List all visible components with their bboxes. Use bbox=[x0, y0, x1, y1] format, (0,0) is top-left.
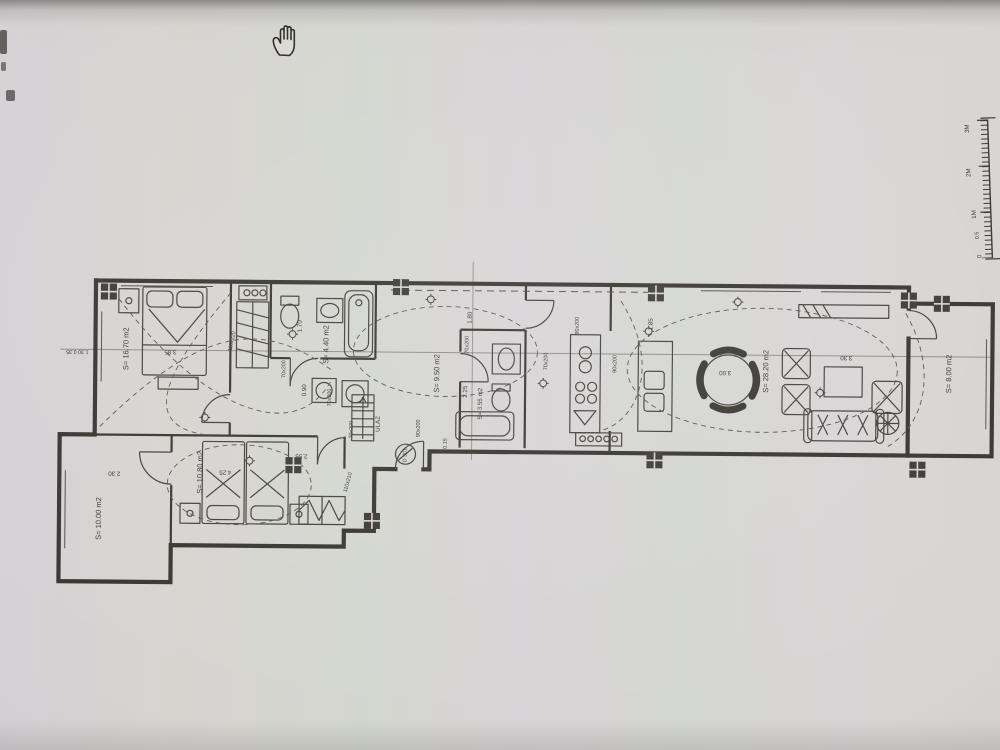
room-label-hallway: S= 9.50 m2 bbox=[432, 354, 441, 393]
scale-label-05m: 0.5 bbox=[974, 232, 980, 240]
dim-wardrobe-bottom: 110x210 bbox=[343, 472, 354, 493]
dim-door-living: 90x200 bbox=[612, 355, 618, 373]
dim-bedroom2-length: 4.25 bbox=[219, 469, 232, 476]
scale-label-3m: 3M bbox=[964, 124, 971, 133]
electrical-arcs bbox=[99, 292, 925, 531]
bedroom2-furniture bbox=[180, 441, 346, 524]
dim-door-kitchen: 90x200 bbox=[575, 317, 581, 335]
entrance-label: ULAZ bbox=[375, 416, 382, 432]
door-bathroom2 bbox=[460, 354, 488, 382]
scale-bar: 3M 2M 1M 0.5 0 bbox=[964, 118, 1000, 260]
dim-bathroom1-length: 1.70 bbox=[297, 320, 304, 333]
hand-cursor-icon bbox=[273, 26, 294, 56]
section-line-vertical bbox=[471, 262, 473, 460]
dim-door-bedroom1: 70x200 bbox=[281, 360, 287, 378]
dim-bedroom2-width: 2.55 bbox=[295, 452, 308, 459]
entrance-labels: ULAZ D 301 90x200 bbox=[374, 416, 421, 463]
dim-door-kitchen2: 70x200 bbox=[543, 353, 549, 371]
door-bedroom2 bbox=[317, 436, 344, 464]
dim-hall-corner: 0.90 bbox=[301, 384, 308, 397]
dim-door-bathroom1: 70x200 bbox=[327, 389, 333, 407]
scale-label-1m: 1M bbox=[971, 210, 978, 219]
dim-bathroom2-length: 2.25 bbox=[462, 385, 469, 398]
dim-wall-offsets: 1.30 0.35 bbox=[66, 348, 89, 354]
dim-terrace-left-width: 2.30 bbox=[108, 470, 121, 477]
scale-label-2m: 2M bbox=[965, 168, 972, 177]
dim-living-width: 3.30 bbox=[840, 354, 853, 361]
room-label-terrace-right: S= 8.00 m2 bbox=[944, 355, 953, 394]
lamp-symbols bbox=[199, 292, 826, 471]
dim-dining-width: 3.00 bbox=[719, 369, 732, 376]
floorplan-canvas[interactable]: S= 16.70 m2 S= 4.40 m2 S= 9.50 m2 S= 3.5… bbox=[0, 0, 1000, 750]
entrance-door-code: D 301 bbox=[402, 448, 408, 462]
bedroom1-furniture bbox=[118, 285, 269, 390]
door-kitchen bbox=[526, 300, 554, 328]
living-room-furniture bbox=[782, 304, 903, 443]
dim-hall-width: 1.80 bbox=[467, 311, 474, 324]
dim-door-bathroom2: 70x200 bbox=[464, 336, 470, 354]
dim-bedroom1-width: 3.85 bbox=[164, 348, 177, 355]
monitor-photo: S= 16.70 m2 S= 4.40 m2 S= 9.50 m2 S= 3.5… bbox=[0, 0, 1000, 750]
entrance-door-size: 90x200 bbox=[416, 419, 422, 437]
room-label-bathroom2: S= 3.55 m2 bbox=[477, 387, 484, 419]
room-label-terrace-left: S= 10.00 m2 bbox=[94, 497, 103, 540]
entrance-stairs bbox=[352, 395, 374, 441]
door-terrace-left-room bbox=[139, 452, 171, 484]
scale-label-0: 0 bbox=[976, 254, 983, 258]
room-label-bedroom1: S= 16.70 m2 bbox=[121, 327, 130, 370]
dim-bathroom2-step: 0.15 bbox=[443, 438, 449, 449]
dim-kitchen-width: 1.85 bbox=[648, 318, 655, 331]
dining-set bbox=[699, 350, 757, 410]
door-bathroom1 bbox=[290, 358, 318, 386]
door-bedroom1 bbox=[202, 394, 230, 422]
room-label-living-dining: S= 28.20 m2 bbox=[761, 350, 770, 393]
dim-door-bedroom2: 70x200 bbox=[349, 421, 355, 439]
kitchen-fixtures bbox=[570, 335, 673, 447]
room-label-bedroom2: S= 10.80 m2 bbox=[195, 451, 204, 494]
room-label-bathroom1: S= 4.40 m2 bbox=[321, 325, 330, 364]
door-terrace-right bbox=[909, 311, 937, 339]
